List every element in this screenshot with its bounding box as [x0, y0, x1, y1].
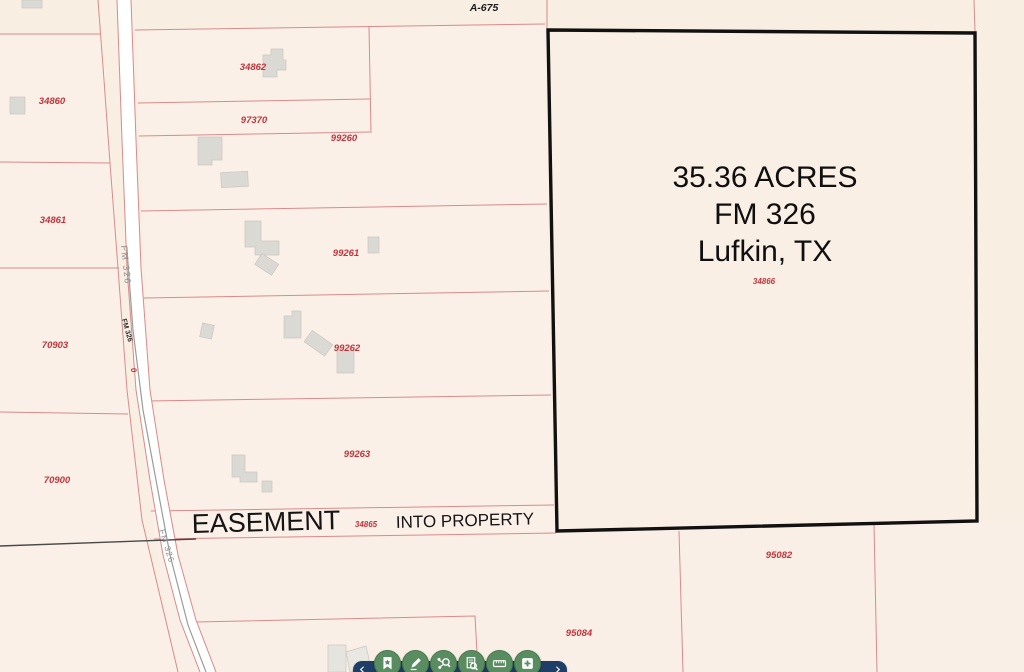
survey-label: A-675 — [469, 2, 499, 14]
highlighted-parcel[interactable]: 35.36 ACRES FM 326 Lufkin, TX 34866 — [548, 30, 977, 531]
parcel-label-34866: 34866 — [753, 277, 776, 286]
parcel-label-34862: 34862 — [240, 62, 267, 73]
gis-map-viewer: 35.36 ACRES FM 326 Lufkin, TX 34866 A-67… — [0, 0, 1024, 672]
parcel-map[interactable]: 35.36 ACRES FM 326 Lufkin, TX 34866 A-67… — [0, 0, 1024, 672]
parcel-label-34865: 34865 — [355, 520, 378, 529]
parcel-label-99261: 99261 — [333, 248, 359, 259]
highlight-city: Lufkin, TX — [698, 235, 833, 268]
network-search-icon — [436, 656, 451, 671]
parcel-label-99260: 99260 — [331, 133, 358, 144]
toolbar-button-add[interactable] — [514, 650, 541, 672]
toolbar-prev-chevron[interactable]: ‹ — [359, 662, 365, 672]
ruler-icon — [492, 656, 507, 671]
parcel-label-97370: 97370 — [241, 115, 268, 126]
toolbar-button-query[interactable] — [430, 650, 457, 672]
toolbar-button-draw[interactable] — [402, 650, 429, 672]
document-search-icon — [464, 656, 479, 671]
toolbar-next-chevron[interactable]: › — [555, 662, 561, 672]
parcel-label-99262: 99262 — [334, 343, 361, 354]
parcel-label-95082: 95082 — [766, 550, 793, 561]
parcel-label-34861: 34861 — [40, 215, 66, 226]
parcel-label-70900: 70900 — [44, 475, 71, 486]
parcel-label-99263: 99263 — [344, 449, 371, 460]
parcel-label-70903: 70903 — [42, 340, 69, 351]
pencil-icon — [408, 656, 423, 671]
toolbar-button-measure[interactable] — [486, 650, 513, 672]
add-square-icon — [520, 656, 535, 671]
highlight-acreage: 35.36 ACRES — [672, 161, 857, 194]
toolbar-button-bookmarks[interactable] — [374, 650, 401, 672]
highlight-road: FM 326 — [714, 198, 816, 231]
easement-subtitle: INTO PROPERTY — [396, 509, 535, 532]
bookmark-star-icon — [380, 656, 395, 671]
toolbar-button-identify[interactable] — [458, 650, 485, 672]
easement-title: EASEMENT — [191, 505, 340, 539]
parcel-label-95084: 95084 — [566, 628, 593, 639]
parcel-label-34860: 34860 — [39, 96, 66, 107]
